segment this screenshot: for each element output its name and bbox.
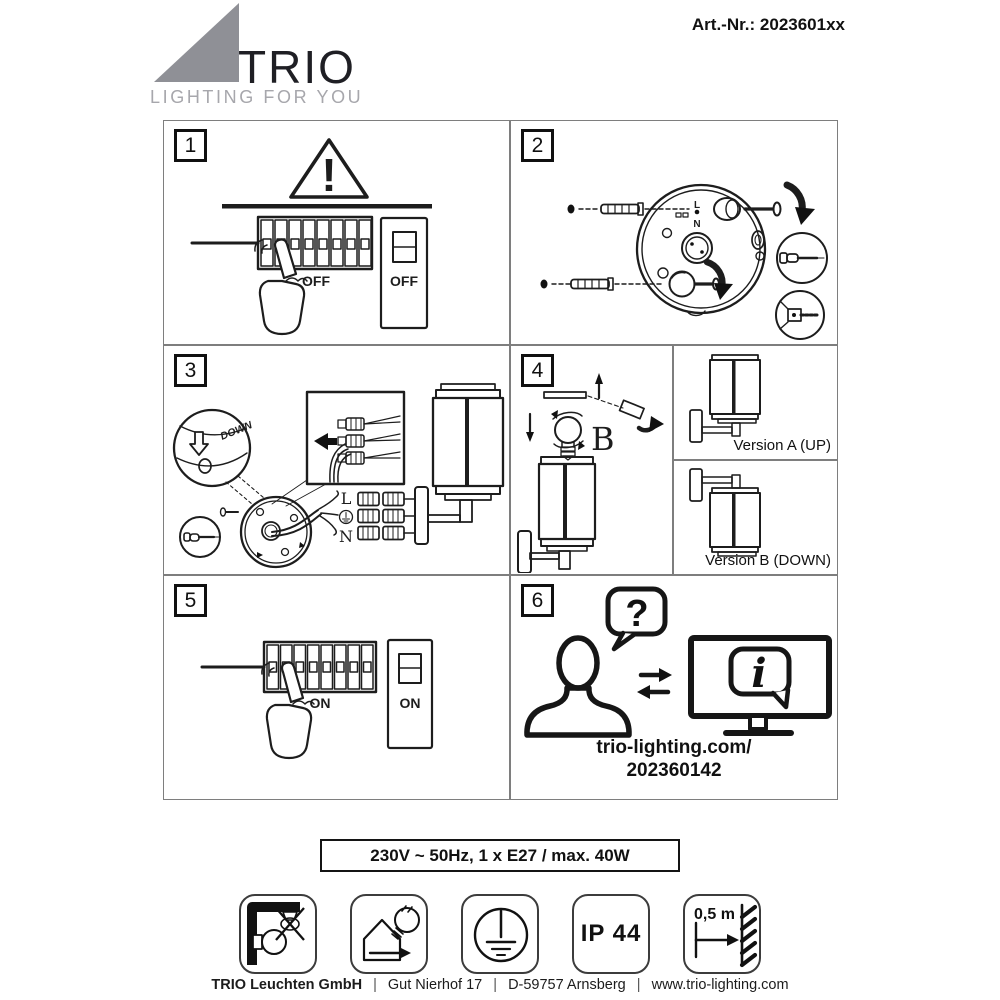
svg-text:OFF: OFF [390,273,418,289]
step-number: 6 [521,584,554,617]
electrical-spec-box: 230V ~ 50Hz, 1 x E27 / max. 40W [320,839,680,872]
protection-class-badge [461,894,539,974]
svg-text:L: L [694,200,700,211]
step-3-panel: 3 DOWN [163,345,510,575]
article-number: Art.-Nr.: 2023601xx [692,15,845,35]
support-url-line1: trio-lighting.com/ [511,736,837,759]
footer-street: Gut Nierhof 17 [388,977,482,993]
footer-company: TRIO Leuchten GmbH [211,977,362,993]
svg-text:ON: ON [400,695,421,711]
distance-to-wall-icon: 0,5 m [686,897,759,972]
svg-text:N: N [339,527,353,546]
wall-mount-only-badge [239,894,317,974]
footer-website: www.trio-lighting.com [652,977,789,993]
instruction-sheet: TRIO LIGHTING FOR YOU Art.-Nr.: 2023601x… [0,0,1000,1000]
mounting-plate-illustration-icon: L N [511,121,836,343]
no-ceiling-mount-icon [242,897,315,972]
svg-text:0,5 m: 0,5 m [694,906,735,923]
symbol-row: IP 44 0,5 m [239,894,761,974]
step-5-panel: 5 ON [163,575,510,800]
step-number: 3 [174,354,207,387]
footer-separator: | [637,977,641,993]
earth-ground-icon [464,897,537,972]
trio-logo-triangle-icon [152,2,242,84]
ip-rating-label: IP 44 [581,920,642,948]
footer-city: D-59757 Arnsberg [508,977,626,993]
brand-name: TRIO [238,40,356,94]
step-2-panel: 2 [510,120,838,345]
svg-text:!: ! [321,149,336,201]
house-bulb-icon [353,897,426,972]
brand-tagline: LIGHTING FOR YOU [150,87,363,108]
step-number: 2 [521,129,554,162]
step-1-panel: 1 ! [163,120,510,345]
step-number: 4 [521,354,554,387]
footer-separator: | [373,977,377,993]
bulb-replaceable-badge [350,894,428,974]
wiring-illustration-icon: DOWN [164,346,508,573]
ip-rating-badge: IP 44 [572,894,650,974]
footer-separator: | [493,977,497,993]
svg-text:N: N [693,219,700,230]
version-b-panel: Version B (DOWN) [673,460,838,575]
power-on-illustration-icon: ON ON [164,576,508,798]
svg-text:L: L [341,489,352,508]
version-a-label: Version A (UP) [733,437,831,454]
step-number: 5 [174,584,207,617]
version-a-panel: Version A (UP) [673,345,838,460]
svg-text:i: i [751,650,766,697]
svg-text:?: ? [625,593,648,635]
step-4-panel: 4 [510,345,673,575]
step-number: 1 [174,129,207,162]
support-url-line2: 202360142 [511,759,837,782]
power-off-illustration-icon: ! OFF [164,121,508,343]
svg-text:B: B [591,420,615,458]
version-b-label: Version B (DOWN) [705,552,831,569]
step-grid: 1 ! [163,120,838,800]
min-distance-badge: 0,5 m [683,894,761,974]
step-6-panel: 6 ? i [510,575,838,800]
footer: TRIO Leuchten GmbH | Gut Nierhof 17 | D-… [0,977,1000,993]
support-url: trio-lighting.com/ 202360142 [511,736,837,782]
